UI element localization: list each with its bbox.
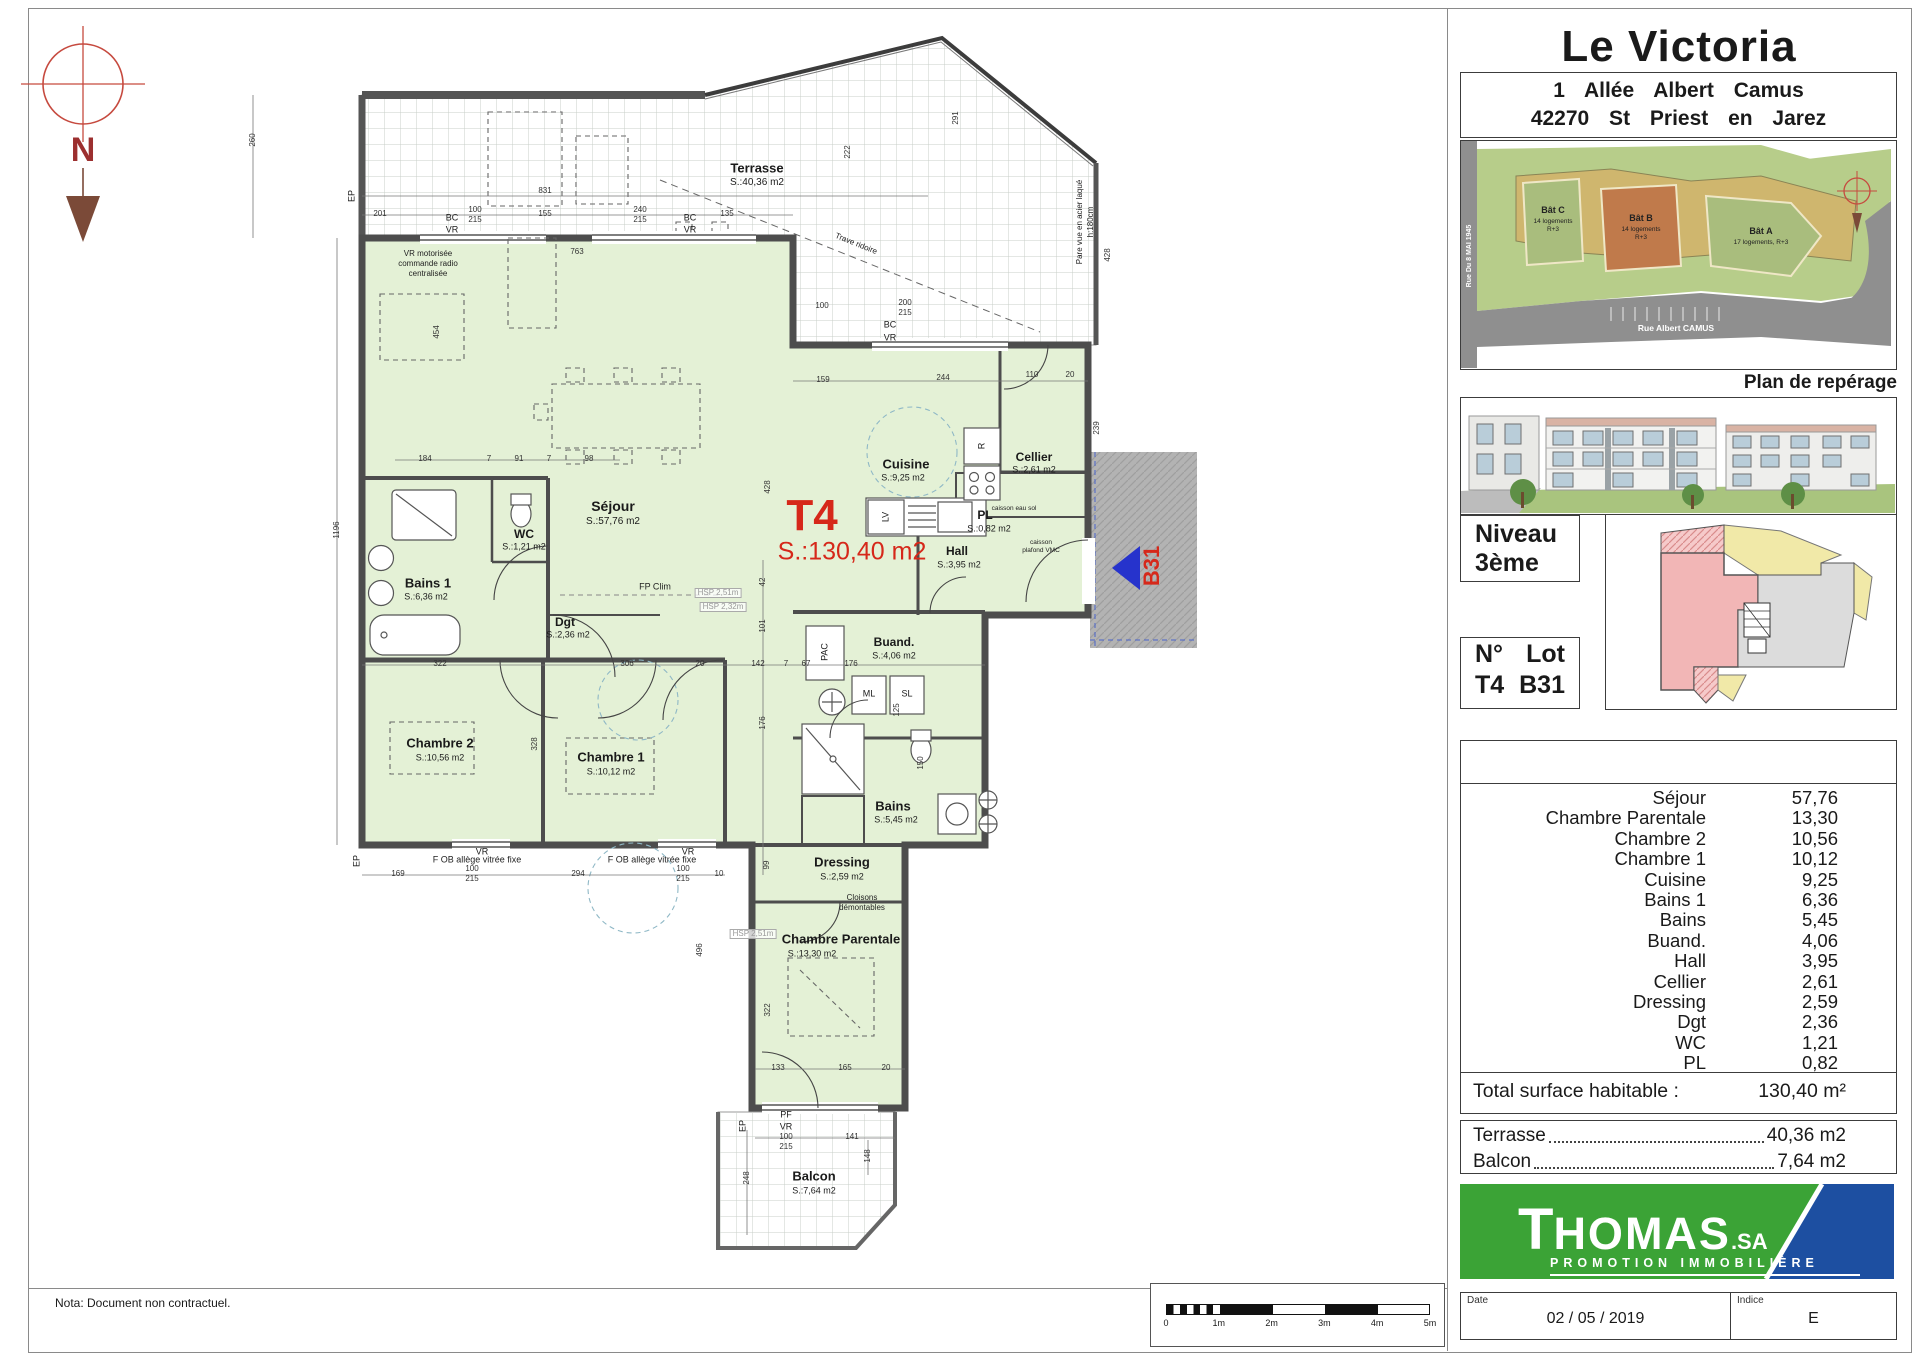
appliance-label: PAC [821, 643, 830, 661]
table-row: PL0,82 [1461, 1052, 1896, 1072]
balcon-value: 7,64 m2 [1777, 1151, 1846, 1173]
table-row: WC1,21 [1461, 1032, 1896, 1052]
room-label: Balcon [792, 1170, 835, 1183]
siteplan-caption: Plan de repérage [1460, 372, 1897, 394]
dimension: 150 [917, 756, 925, 769]
room-name: Cellier [1461, 971, 1706, 991]
logo-tagline-wrap: PROMOTION IMMOBILIÈRE [1550, 1254, 1860, 1276]
dimension: 1196 [333, 521, 341, 538]
annotation: HSP 2,51m [730, 929, 777, 939]
dimension: 7 [487, 455, 491, 463]
table-row: Dressing2,59 [1461, 991, 1896, 1011]
dimension: 98 [585, 455, 594, 463]
scale-label: 0 [1163, 1318, 1168, 1328]
room-label: PL [977, 509, 992, 521]
room-area: S.:10,56 m2 [416, 754, 465, 763]
logo-wordmark: THOMAS.SA [1518, 1196, 1768, 1263]
dimension: 496 [696, 943, 704, 956]
table-row: Cuisine9,25 [1461, 869, 1896, 889]
room-label: Terrasse [730, 162, 783, 175]
room-label: Hall [946, 545, 968, 557]
dimension: 176 [844, 660, 857, 668]
project-address: 1 Allée Albert Camus 42270 St Priest en … [1460, 72, 1897, 138]
developer-logo: THOMAS.SA PROMOTION IMMOBILIÈRE [1460, 1184, 1897, 1282]
room-area: S.:40,36 m2 [730, 178, 784, 188]
window-label: BC [884, 321, 897, 330]
level-line-1: Niveau [1475, 520, 1579, 549]
total-label: Total surface habitable : [1461, 1080, 1679, 1103]
dimension: 322 [764, 1003, 772, 1016]
terrasse-row: Terrasse 40,36 m2 [1461, 1121, 1896, 1147]
scale-seg [1273, 1305, 1326, 1314]
batiment-b-sub2: R+3 [1635, 234, 1647, 241]
dimension: 125 [893, 703, 901, 716]
table-row: Chambre 210,56 [1461, 828, 1896, 848]
project-title: Le Victoria [1447, 22, 1911, 72]
appliance-label: SL [901, 690, 912, 699]
key-plan [1605, 514, 1897, 710]
annotation: Trave ridoire [834, 232, 878, 256]
table-row: Bains5,45 [1461, 909, 1896, 929]
address-line-2: 42270 St Priest en Jarez [1461, 105, 1896, 133]
balcon-row: Balcon 7,64 m2 [1461, 1147, 1896, 1173]
annotation: démontables [839, 904, 885, 912]
dimension: 291 [952, 111, 960, 124]
room-area: S.:10,12 m2 [587, 768, 636, 777]
annotation: commande radio [398, 260, 458, 268]
table-row: Chambre 110,12 [1461, 848, 1896, 868]
scale-label: 3m [1318, 1318, 1331, 1328]
room-area: S.:2,61 m2 [1012, 466, 1056, 475]
dimension: 239 [1093, 421, 1101, 434]
room-label: Cellier [1016, 451, 1053, 463]
date-label: Date [1467, 1295, 1488, 1306]
batiment-b-label: Bât B [1629, 213, 1653, 223]
dimension: 148 [864, 1149, 872, 1162]
room-label: Chambre 2 [406, 737, 473, 750]
logo-letter-t: T [1518, 1197, 1553, 1262]
site-plan-drawing: Bât C 14 logements R+3 Bât B 14 logement… [1461, 141, 1895, 368]
room-area-value: 1,21 [1706, 1032, 1896, 1052]
dimension: 322 [433, 660, 446, 668]
dimension: 100 [465, 865, 478, 873]
room-area: S.:6,36 m2 [404, 593, 448, 602]
room-area-value: 10,56 [1706, 828, 1896, 848]
room-area: S.:9,25 m2 [881, 474, 925, 483]
dot-leader [1549, 1141, 1764, 1143]
dimension: 100 [468, 206, 481, 214]
key-plan-drawing [1606, 515, 1895, 708]
room-area-value: 4,06 [1706, 930, 1896, 950]
window-label: VR [884, 334, 897, 343]
room-area-value: 3,95 [1706, 950, 1896, 970]
room-name: Bains [1461, 909, 1706, 929]
dimension: 200 [898, 299, 911, 307]
room-area: S.:2,36 m2 [546, 631, 590, 640]
areas-table: Séjour57,76Chambre Parentale13,30Chambre… [1460, 740, 1897, 1114]
room-area-value: 0,82 [1706, 1052, 1896, 1072]
indice-cell: Indice E [1730, 1293, 1896, 1339]
room-label: Bains [875, 800, 910, 813]
dimension: 135 [720, 210, 733, 218]
room-area: S.:5,45 m2 [874, 816, 918, 825]
batiment-c-label: Bât C [1541, 205, 1565, 215]
room-area-value: 57,76 [1706, 787, 1896, 807]
annotation: HSP 2,32m [700, 602, 747, 612]
table-row: Cellier2,61 [1461, 971, 1896, 991]
dimension: 201 [373, 210, 386, 218]
scale-bar-segments [1166, 1304, 1430, 1315]
room-area: S.:1,21 m2 [502, 543, 546, 552]
annotation: plafond VMC [1022, 548, 1060, 555]
annotation: EP [348, 190, 357, 202]
terrasse-label: Terrasse [1473, 1125, 1546, 1147]
scale-label: 4m [1371, 1318, 1384, 1328]
date-indice-box: Date 02 / 05 / 2019 Indice E [1460, 1292, 1897, 1340]
scale-seg [1325, 1305, 1378, 1314]
lot-number: B31 [1519, 671, 1565, 700]
room-name: Dgt [1461, 1011, 1706, 1031]
total-row: Total surface habitable : 130,40 m² [1461, 1072, 1896, 1109]
dimension: 306 [620, 660, 633, 668]
room-label: Séjour [591, 499, 635, 513]
annotation: h:180cm [1087, 207, 1095, 238]
annotation: centralisée [409, 270, 448, 278]
dimension: 100 [779, 1133, 792, 1141]
table-row: Bains 16,36 [1461, 889, 1896, 909]
exterior-areas-box: Terrasse 40,36 m2 Balcon 7,64 m2 [1460, 1120, 1897, 1174]
dimension: 294 [571, 870, 584, 878]
dot-leader [1534, 1167, 1774, 1169]
unit-lot-label: B31 [1141, 546, 1163, 586]
room-area-value: 9,25 [1706, 869, 1896, 889]
room-area-value: 2,36 [1706, 1011, 1896, 1031]
logo-tagline: PROMOTION IMMOBILIÈRE [1550, 1256, 1819, 1270]
building-rendering [1460, 397, 1897, 515]
table-row: Séjour57,76 [1461, 787, 1896, 807]
scale-label: 1m [1213, 1318, 1226, 1328]
table-row: Dgt2,36 [1461, 1011, 1896, 1031]
window-label: VR [684, 226, 697, 235]
dimension: 7 [784, 660, 788, 668]
date-cell: Date 02 / 05 / 2019 [1461, 1293, 1730, 1339]
room-name: Chambre 2 [1461, 828, 1706, 848]
annotation: EP [353, 855, 362, 867]
dimension: 101 [759, 619, 767, 632]
annotation: VR motorisée [404, 250, 452, 258]
room-name: Séjour [1461, 787, 1706, 807]
room-area-value: 2,59 [1706, 991, 1896, 1011]
appliance-label: ML [863, 690, 876, 699]
street-label-bottom: Rue Albert CAMUS [1638, 323, 1715, 333]
dimension: 763 [570, 248, 583, 256]
room-area: S.:7,64 m2 [792, 1187, 836, 1196]
annotation: caisson [1030, 540, 1052, 547]
dimension: 215 [633, 216, 646, 224]
balcon-label: Balcon [1473, 1151, 1531, 1173]
dimension: 99 [763, 861, 771, 870]
annotation: FP Clim [639, 583, 671, 592]
room-label: WC [514, 528, 534, 540]
annotation: Pare vue en acier laqué [1076, 180, 1084, 265]
room-label: Cuisine [883, 458, 930, 471]
room-name: Chambre Parentale [1461, 807, 1706, 827]
terrasse-value: 40,36 m2 [1767, 1125, 1846, 1147]
annotation: Cloisons [847, 894, 878, 902]
dimension: 244 [936, 374, 949, 382]
dimension: 169 [391, 870, 404, 878]
batiment-a-label: Bât A [1749, 226, 1773, 236]
room-label: Chambre 1 [577, 751, 644, 764]
appliance-label: R [978, 443, 987, 450]
table-row: Chambre Parentale13,30 [1461, 807, 1896, 827]
level-line-2: 3ème [1475, 549, 1579, 578]
unit-type-label: T4 [786, 494, 837, 538]
window-label: BC [446, 214, 459, 223]
logo-suffix: .SA [1731, 1229, 1768, 1254]
room-area-value: 10,12 [1706, 848, 1896, 868]
room-area: S.:4,06 m2 [872, 652, 916, 661]
room-name: Hall [1461, 950, 1706, 970]
dimension: 328 [531, 737, 539, 750]
scale-seg [1378, 1305, 1429, 1314]
dimension: 91 [515, 455, 524, 463]
scale-bar: 01m2m3m4m5m [1150, 1283, 1445, 1347]
street-label-left: Rue Du 8 MAI 1945 [1466, 225, 1473, 288]
room-area: S.:57,76 m2 [586, 517, 640, 527]
room-area: S.:0,82 m2 [967, 525, 1011, 534]
areas-table-header [1461, 741, 1896, 784]
unit-area-label: S.:130,40 m2 [778, 540, 927, 565]
indice-value: E [1731, 1310, 1896, 1328]
dimension: 110 [1026, 371, 1039, 379]
dimension: 20 [882, 1064, 891, 1072]
scale-label: 5m [1424, 1318, 1437, 1328]
dimension: 831 [538, 187, 551, 195]
disclaimer-note: Nota: Document non contractuel. [55, 1296, 230, 1310]
dimension: 159 [816, 376, 829, 384]
dimension: 215 [779, 1143, 792, 1151]
dimension: 260 [249, 133, 257, 146]
dimension: 133 [771, 1064, 784, 1072]
room-name: WC [1461, 1032, 1706, 1052]
scale-seg [1220, 1305, 1273, 1314]
dimension: 215 [898, 309, 911, 317]
dimension: 222 [844, 145, 852, 158]
annotation: caisson eau sol [992, 506, 1037, 513]
indice-label: Indice [1737, 1295, 1764, 1306]
total-value: 130,40 m² [1679, 1080, 1896, 1103]
dimension: 142 [751, 660, 764, 668]
dimension: 165 [838, 1064, 851, 1072]
window-label: BC [684, 214, 697, 223]
scale-labels: 01m2m3m4m5m [1151, 1318, 1444, 1332]
plan-labels-layer: NSéjourS.:57,76 m2WCS.:1,21 m2Bains 1S.:… [0, 0, 1230, 1290]
batiment-a-sub: 17 logements, R+3 [1734, 239, 1789, 246]
date-value: 02 / 05 / 2019 [1461, 1310, 1730, 1328]
north-label: N [71, 133, 96, 167]
level-box: Niveau 3ème [1460, 515, 1580, 582]
logo-rest: HOMAS [1553, 1208, 1731, 1259]
room-area-value: 13,30 [1706, 807, 1896, 827]
room-area-value: 6,36 [1706, 889, 1896, 909]
room-name: Bains 1 [1461, 889, 1706, 909]
window-label: VR [446, 226, 459, 235]
dimension: 42 [759, 578, 767, 587]
room-area: S.:13,30 m2 [788, 950, 837, 959]
site-plan: Bât C 14 logements R+3 Bât B 14 logement… [1460, 140, 1897, 370]
dimension: 67 [802, 660, 811, 668]
batiment-c-sub: 14 logements [1533, 218, 1573, 225]
room-label: Bains 1 [405, 577, 451, 590]
room-area: S.:2,59 m2 [820, 873, 864, 882]
dimension: 215 [468, 216, 481, 224]
annotation: EP [739, 1120, 748, 1132]
room-name: Buand. [1461, 930, 1706, 950]
annotation: HSP 2,51m [695, 588, 742, 598]
room-label: Dressing [814, 856, 870, 869]
dimension: 100 [815, 302, 828, 310]
room-name: PL [1461, 1052, 1706, 1072]
appliance-label: LV [882, 512, 891, 522]
room-area-value: 5,45 [1706, 909, 1896, 929]
dimension: 141 [845, 1133, 858, 1141]
dimension: 215 [465, 875, 478, 883]
room-name: Cuisine [1461, 869, 1706, 889]
dimension: 7 [547, 455, 551, 463]
room-label: Chambre Parentale [782, 933, 901, 946]
table-row: Hall3,95 [1461, 950, 1896, 970]
lot-box: N° Lot T4 B31 [1460, 637, 1580, 709]
building-rendering-drawing [1461, 398, 1895, 513]
room-label: Buand. [874, 636, 915, 648]
plan-sheet: NSéjourS.:57,76 m2WCS.:1,21 m2Bains 1S.:… [0, 0, 1919, 1357]
dimension: 100 [676, 865, 689, 873]
areas-table-rows: Séjour57,76Chambre Parentale13,30Chambre… [1461, 784, 1896, 1072]
lot-no-label: N° [1475, 640, 1503, 669]
batiment-c-sub2: R+3 [1547, 226, 1559, 233]
dimension: 20 [1066, 371, 1075, 379]
window-label: PF [780, 1111, 792, 1120]
dimension: 454 [433, 325, 441, 338]
scale-seg-checker [1167, 1305, 1220, 1314]
dimension: 176 [759, 716, 767, 729]
room-label: Dgt [555, 616, 575, 628]
batiment-b-sub: 14 logements [1621, 226, 1661, 233]
table-row: Buand.4,06 [1461, 930, 1896, 950]
dimension: 184 [418, 455, 431, 463]
room-area: S.:3,95 m2 [937, 561, 981, 570]
dimension: 428 [1104, 248, 1112, 261]
dimension: 215 [676, 875, 689, 883]
title-block-panel: Le Victoria 1 Allée Albert Camus 42270 S… [1447, 8, 1911, 1351]
scale-label: 2m [1265, 1318, 1278, 1328]
dimension: 428 [764, 480, 772, 493]
lot-word-label: Lot [1526, 640, 1565, 669]
room-name: Dressing [1461, 991, 1706, 1011]
window-label: VR [780, 1123, 793, 1132]
lot-type: T4 [1475, 671, 1504, 700]
dimension: 10 [715, 870, 724, 878]
address-line-1: 1 Allée Albert Camus [1461, 77, 1896, 105]
dimension: 240 [633, 206, 646, 214]
dimension: 155 [538, 210, 551, 218]
dimension: 248 [743, 1171, 751, 1184]
room-area-value: 2,61 [1706, 971, 1896, 991]
room-name: Chambre 1 [1461, 848, 1706, 868]
dimension: 20 [696, 660, 705, 668]
